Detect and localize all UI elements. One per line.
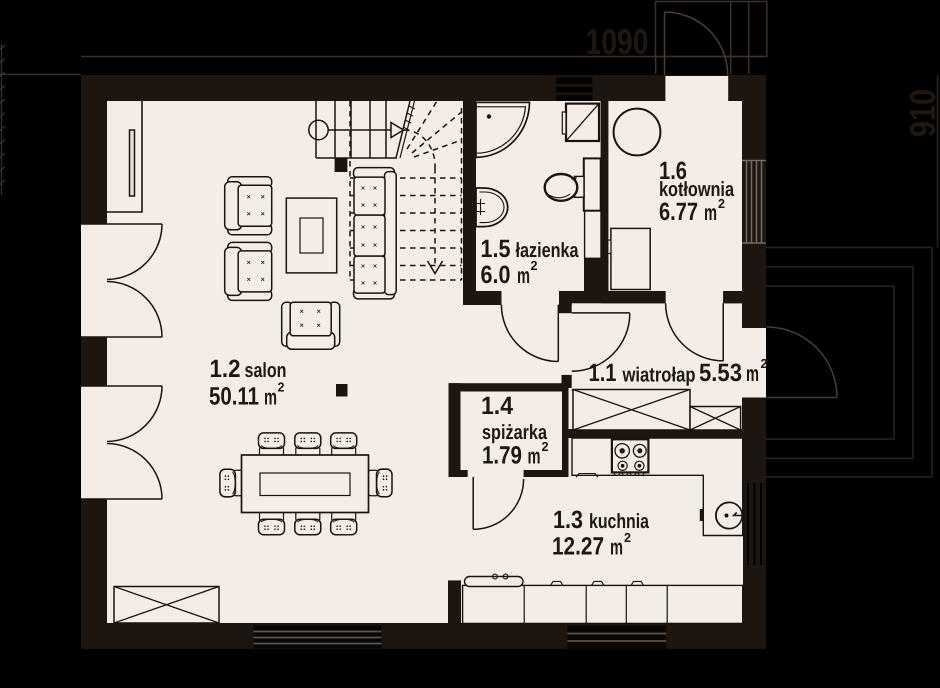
svg-text:1.79: 1.79 (482, 442, 522, 470)
svg-text:wiatrołap: wiatrołap (622, 364, 696, 387)
svg-text:1.4: 1.4 (481, 392, 513, 420)
svg-text:m: m (528, 444, 541, 469)
svg-text:2: 2 (531, 258, 538, 273)
svg-text:m: m (704, 200, 717, 225)
svg-text:6.0: 6.0 (481, 261, 511, 289)
svg-text:łazienka: łazienka (516, 239, 579, 262)
svg-text:m: m (264, 385, 277, 410)
svg-text:m: m (746, 361, 759, 386)
svg-text:1.3: 1.3 (553, 506, 583, 534)
svg-text:12.27: 12.27 (552, 533, 604, 561)
svg-text:1.5: 1.5 (481, 235, 511, 263)
svg-text:5.53: 5.53 (699, 359, 742, 387)
svg-text:50.11: 50.11 (209, 383, 259, 411)
svg-text:m: m (517, 263, 530, 288)
svg-text:m: m (610, 535, 623, 560)
svg-text:2: 2 (542, 439, 549, 454)
svg-text:2: 2 (761, 356, 768, 371)
svg-text:2: 2 (624, 530, 631, 545)
svg-text:1.1: 1.1 (589, 359, 617, 387)
svg-text:910: 910 (902, 89, 940, 137)
svg-text:2: 2 (278, 380, 285, 395)
svg-text:2: 2 (718, 196, 725, 211)
svg-text:1.2: 1.2 (210, 355, 241, 383)
svg-text:6.77: 6.77 (659, 198, 698, 226)
svg-text:kuchnia: kuchnia (589, 510, 649, 533)
svg-text:1090: 1090 (586, 21, 649, 62)
